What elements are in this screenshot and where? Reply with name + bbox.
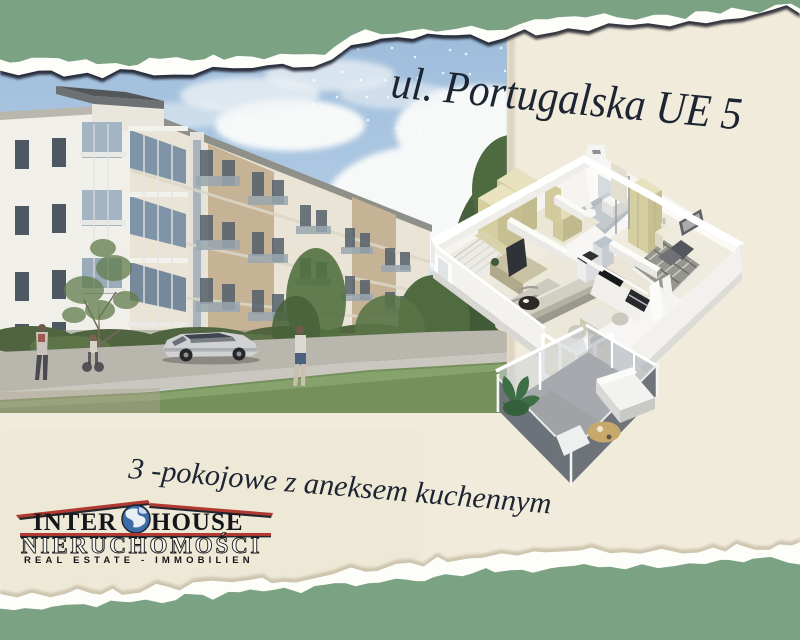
svg-text:HOUSE: HOUSE [151, 509, 244, 536]
svg-text:INTER: INTER [33, 509, 117, 536]
svg-text:REAL ESTATE - IMMOBILIEN: REAL ESTATE - IMMOBILIEN [24, 555, 252, 566]
